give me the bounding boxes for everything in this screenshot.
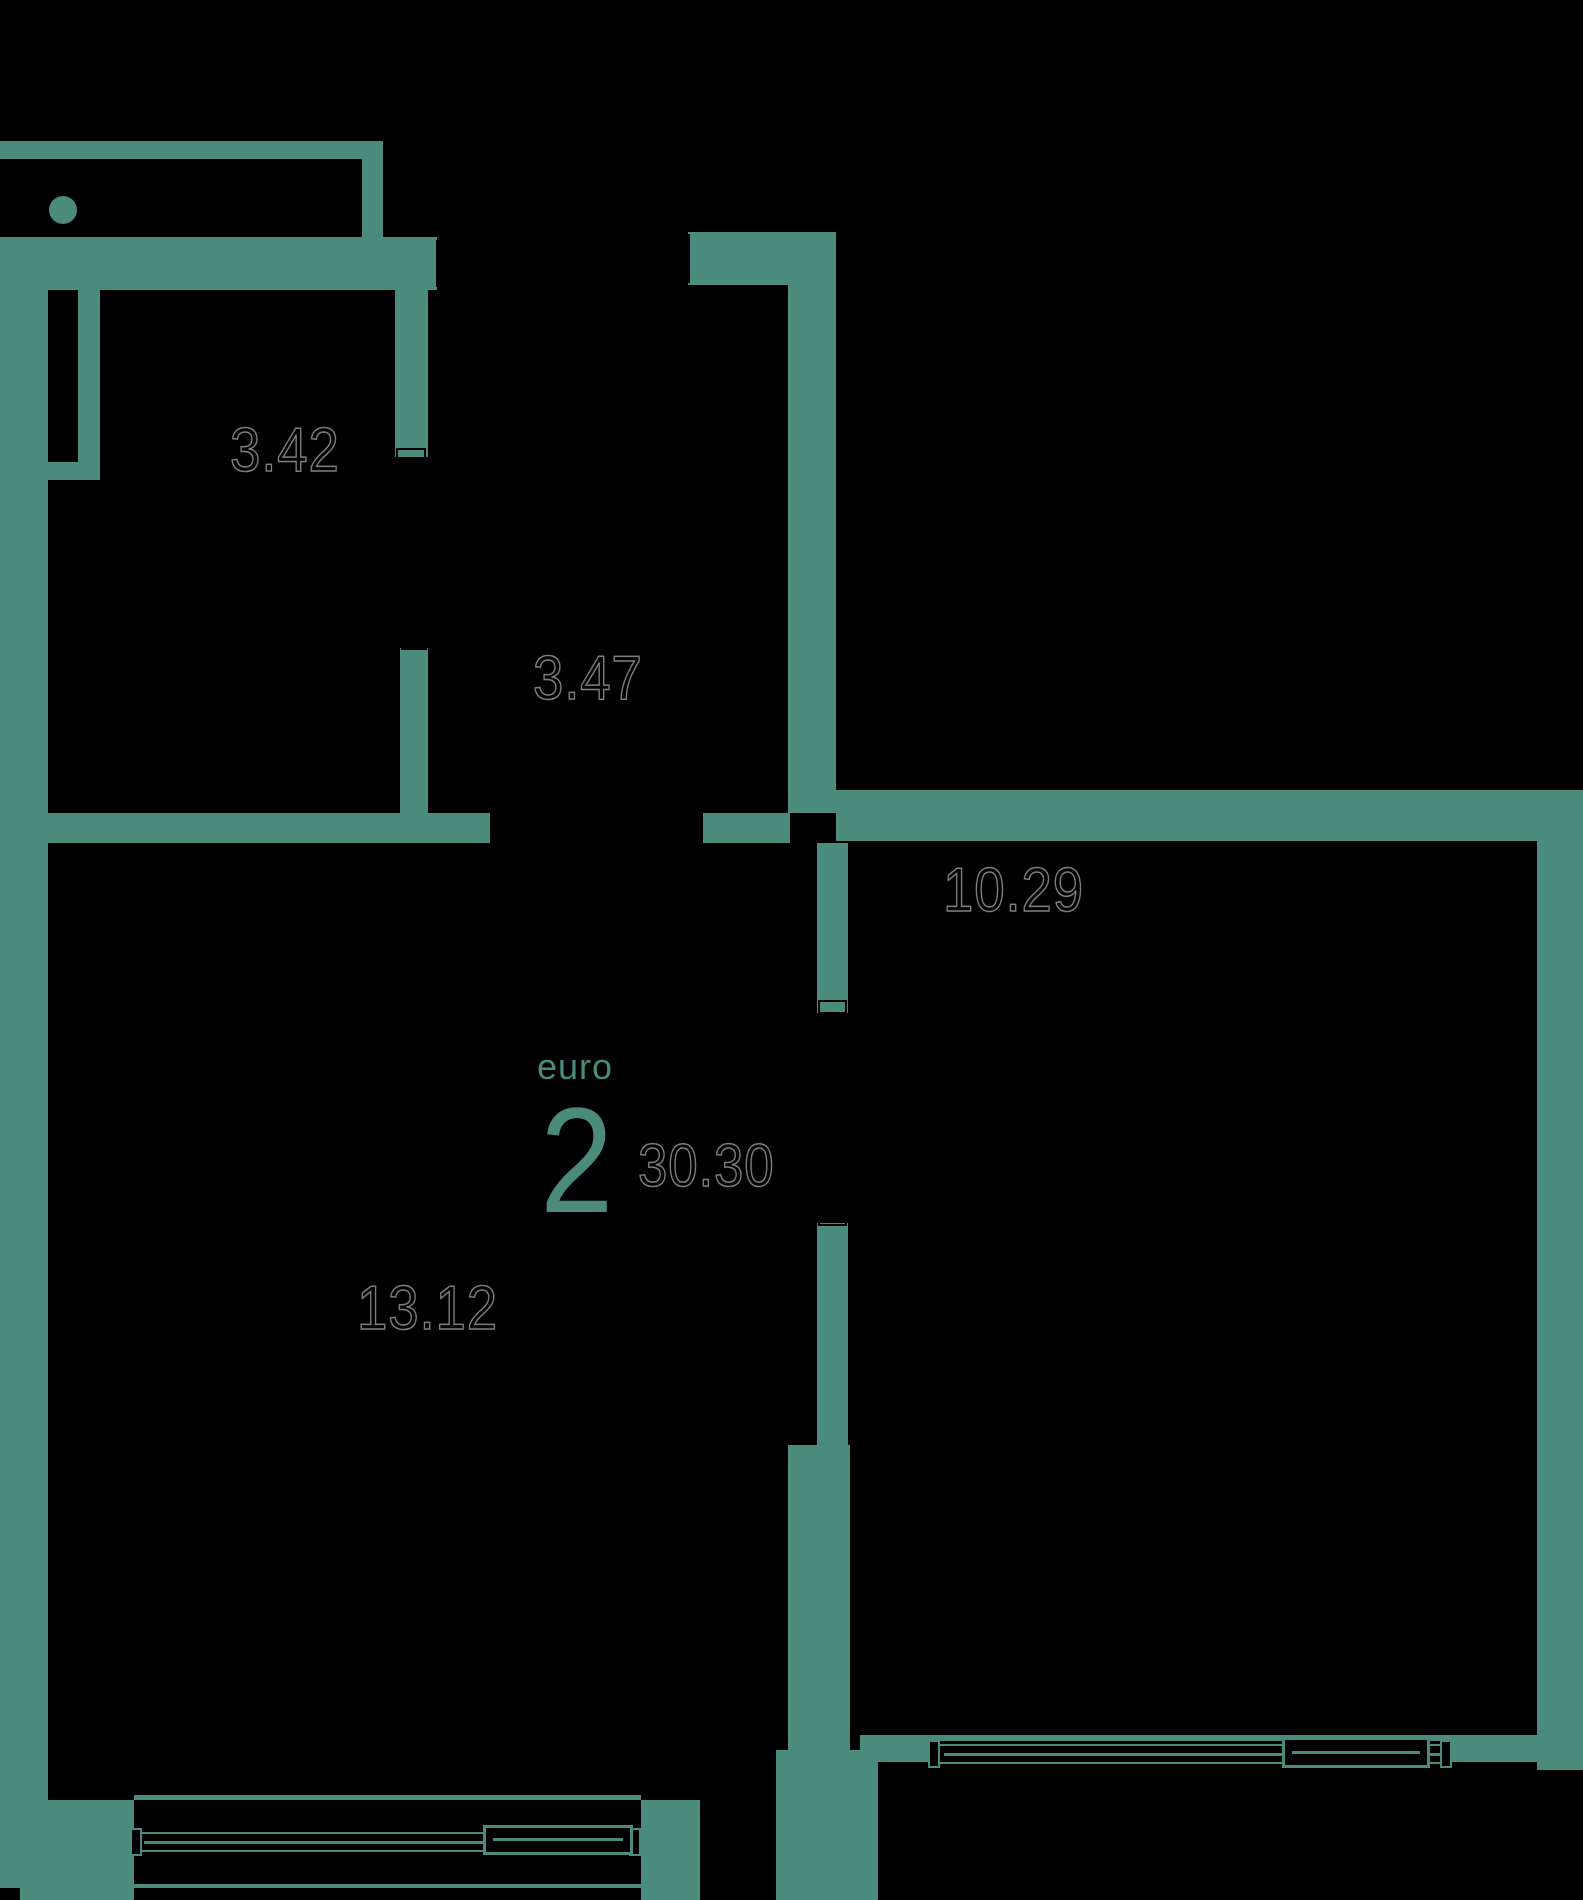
balcony-dot-icon — [49, 196, 77, 224]
left-window-glass-slit — [48, 290, 78, 462]
bathroom-bottom-wall — [0, 813, 490, 843]
bathroom-right-wall-upper — [395, 290, 428, 457]
bedroom-left-wall-middle — [817, 1223, 848, 1445]
balcony-right-wall — [362, 141, 383, 237]
bedroom-window-cap-right — [1440, 1740, 1452, 1768]
living-window-cap-left — [130, 1828, 142, 1856]
bottom-middle-wall-block — [641, 1800, 700, 1900]
bottom-left-notch — [0, 1888, 20, 1900]
bathroom-door-jamb-bottom — [401, 640, 427, 650]
bottom-left-wall-block — [0, 1800, 134, 1900]
bedroom-left-wall-upper — [817, 843, 848, 1013]
apartment-type-number: 2 — [540, 1085, 613, 1235]
bathroom-door-jamb-top — [396, 448, 426, 460]
entrance-door-jamb-right — [678, 234, 690, 283]
left-exterior-wall — [0, 237, 48, 1900]
room-label-hallway: 3.47 — [533, 648, 643, 710]
bedroom-door-jamb-top — [818, 1000, 847, 1014]
bedroom-window-connector-left — [860, 1735, 934, 1762]
entrance-door-jamb-left — [436, 240, 448, 287]
bedroom-door-jamb-bottom — [818, 1214, 847, 1226]
room-label-living-kitchen: 13.12 — [357, 1278, 498, 1340]
bottom-middle-wall-mass — [776, 1750, 878, 1900]
bottom-middle-notch — [728, 1886, 776, 1900]
floor-plan: 3.42 3.47 10.29 13.12 euro 2 30.30 — [0, 0, 1583, 1900]
room-label-bedroom: 10.29 — [943, 860, 1084, 922]
room-label-bathroom: 3.42 — [230, 420, 340, 482]
total-area-label: 30.30 — [638, 1136, 775, 1196]
bedroom-window-connector-right — [1450, 1735, 1537, 1762]
right-exterior-wall — [1537, 841, 1583, 1770]
bedroom-window-cap-left — [928, 1740, 940, 1768]
bedroom-left-wall-lower — [788, 1445, 850, 1750]
hallway-right-wall — [788, 285, 836, 813]
living-balcony-door-line — [493, 1838, 623, 1841]
top-wall-right-stub — [688, 232, 836, 285]
hallway-bottom-stub — [703, 813, 790, 843]
living-window-sill — [134, 1884, 641, 1888]
balcony-top-wall — [0, 141, 383, 159]
bedroom-balcony-door-line — [1292, 1751, 1420, 1754]
living-window-inner-face — [134, 1795, 641, 1800]
bathroom-right-wall-lower — [400, 648, 428, 813]
bedroom-top-wall — [836, 790, 1583, 841]
